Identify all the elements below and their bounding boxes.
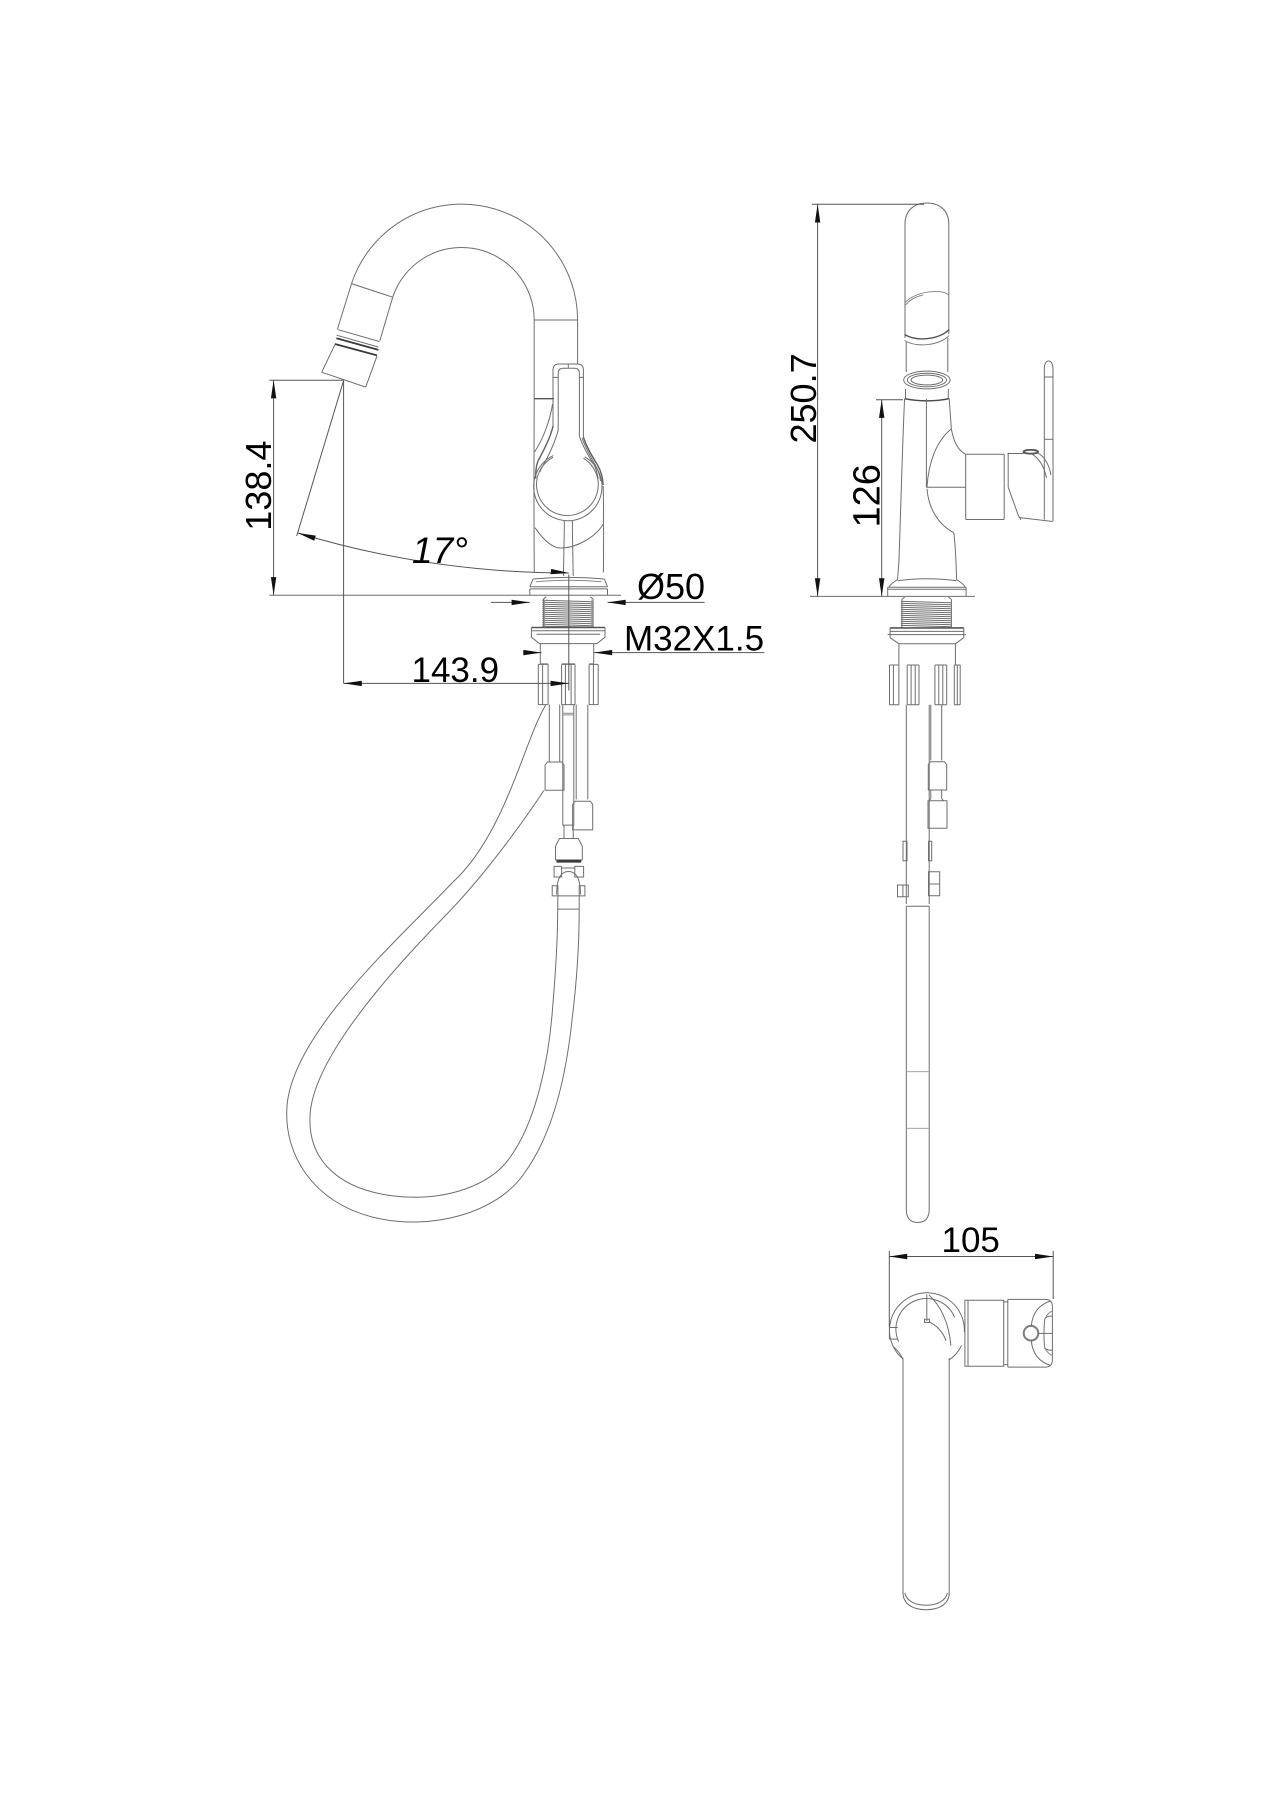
svg-text:105: 105	[942, 1221, 1000, 1260]
svg-text:126: 126	[847, 464, 889, 527]
svg-text:143.9: 143.9	[412, 651, 500, 690]
svg-text:250.7: 250.7	[783, 353, 824, 443]
svg-text:138.4: 138.4	[238, 441, 279, 531]
svg-text:Ø50: Ø50	[637, 566, 705, 607]
svg-text:17°: 17°	[412, 530, 468, 571]
svg-text:M32X1.5: M32X1.5	[624, 620, 764, 659]
